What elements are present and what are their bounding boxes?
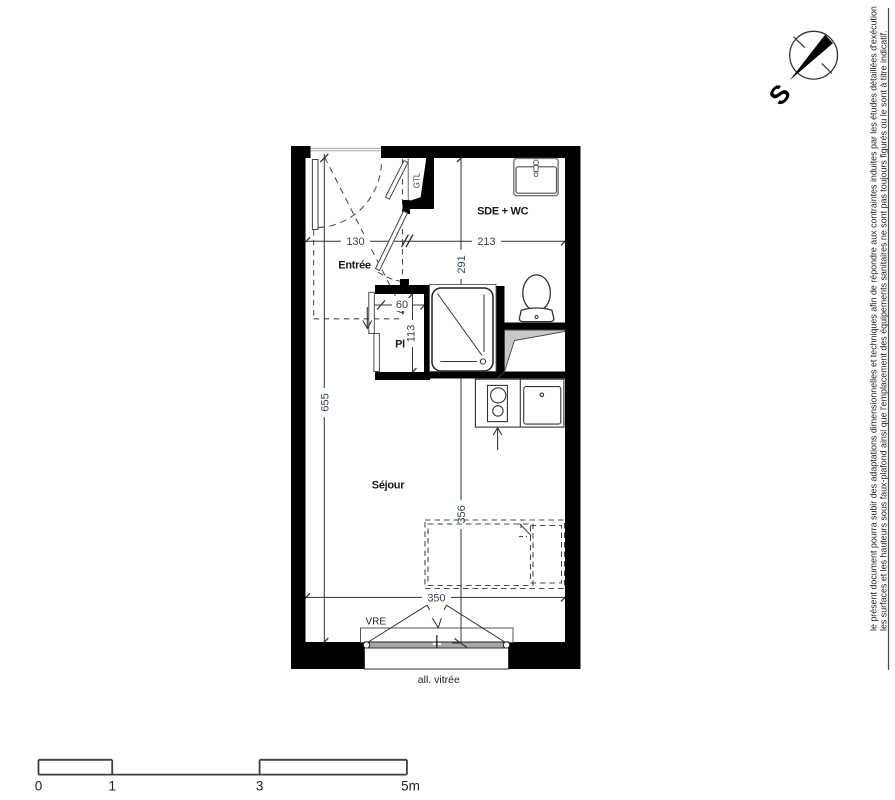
- svg-text:VRE: VRE: [366, 617, 387, 628]
- svg-text:1: 1: [108, 779, 116, 794]
- svg-text:291: 291: [456, 255, 468, 273]
- svg-text:60: 60: [396, 299, 408, 311]
- svg-text:GTL: GTL: [413, 172, 422, 188]
- svg-text:213: 213: [477, 236, 495, 248]
- svg-text:Séjour: Séjour: [372, 480, 405, 492]
- svg-text:113: 113: [406, 325, 418, 343]
- svg-text:Pl: Pl: [395, 339, 405, 351]
- svg-text:0: 0: [35, 779, 43, 794]
- svg-text:3: 3: [256, 779, 264, 794]
- svg-text:SDE + WC: SDE + WC: [477, 206, 528, 218]
- svg-text:Entrée: Entrée: [338, 260, 371, 272]
- svg-text:5m: 5m: [401, 779, 420, 794]
- svg-text:130: 130: [346, 236, 364, 248]
- svg-text:S: S: [763, 78, 797, 111]
- svg-text:655: 655: [320, 393, 332, 411]
- svg-text:356: 356: [456, 505, 468, 523]
- svg-text:all. vitrée: all. vitrée: [418, 674, 460, 686]
- svg-text:350: 350: [427, 593, 445, 605]
- svg-text:les surfaces et les hauteurs s: les surfaces et les hauteurs sous faux-p…: [879, 30, 889, 631]
- svg-text:le présent document pourra sub: le présent document pourra subir des ada…: [869, 6, 879, 631]
